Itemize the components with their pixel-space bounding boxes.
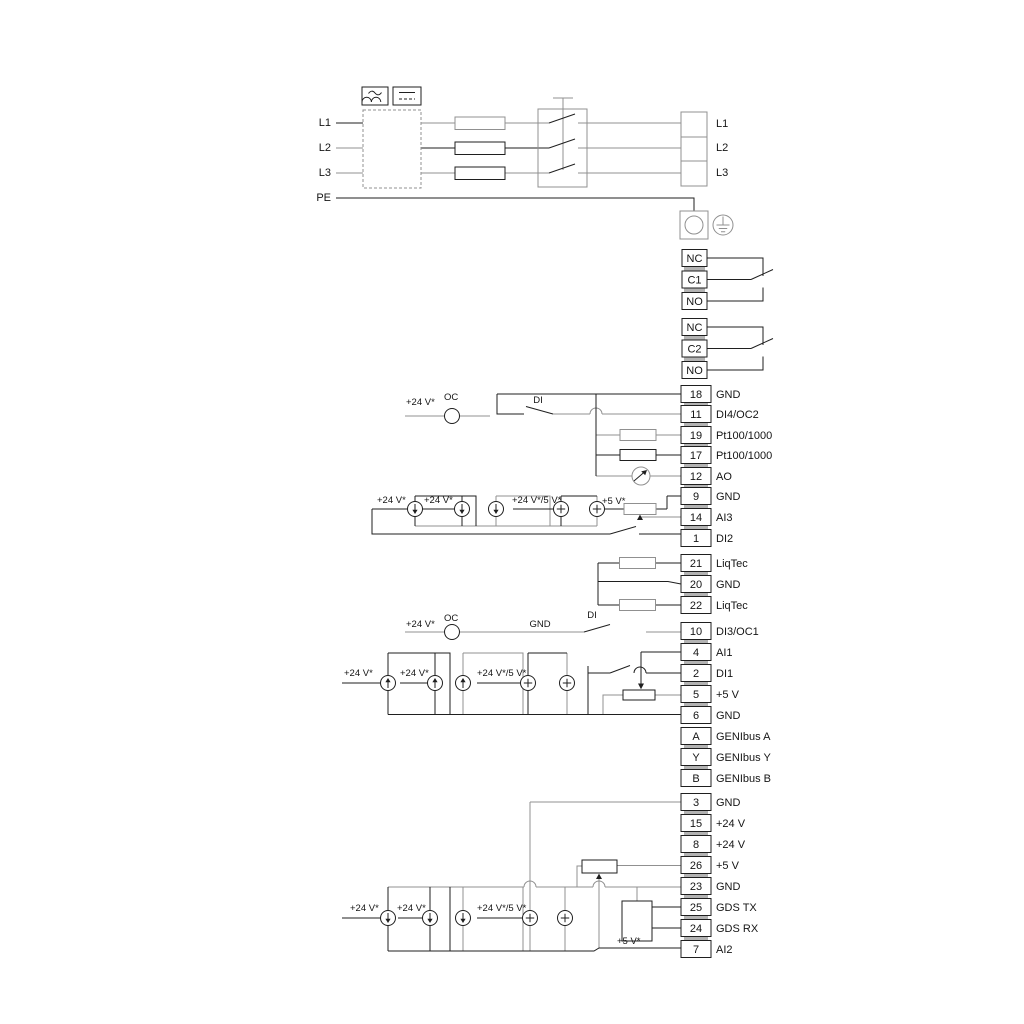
terminal-label: AO — [716, 471, 732, 483]
terminal-number: 6 — [693, 710, 699, 722]
terminal-number: 1 — [693, 533, 699, 545]
terminal-label: AI3 — [716, 512, 733, 524]
terminal-label: AI2 — [716, 944, 733, 956]
v24-label: +24 V* — [400, 668, 429, 679]
terminal-row: 3GND — [681, 794, 741, 811]
terminal-row: 14AI3 — [681, 509, 733, 526]
mains-pe-label: PE — [316, 192, 331, 204]
terminal-row: 18GND — [681, 386, 741, 403]
terminal-number: B — [692, 773, 699, 785]
relay1-c1-label: C1 — [687, 275, 701, 287]
terminal-strip: 18GND 11DI4/OC2 19Pt100/1000 17Pt100/100… — [681, 386, 772, 958]
fuse-l3 — [455, 167, 505, 180]
terminal-row: 12AO — [681, 468, 732, 485]
relay2-no-label: NO — [686, 365, 703, 377]
terminal-label: DI2 — [716, 533, 733, 545]
terminal-row: YGENIbus Y — [681, 749, 771, 766]
terminal-row: 1DI2 — [681, 530, 733, 547]
terminal-label: +24 V — [716, 818, 746, 830]
terminal-number: 22 — [690, 600, 702, 612]
wiring-diagram-page: NC C1 NO NC C2 NO — [0, 0, 1024, 1024]
terminal-number: 9 — [693, 491, 699, 503]
v24-label: +24 V* — [344, 668, 373, 679]
terminal-number: 19 — [690, 430, 702, 442]
v24-label: +24 V* — [397, 903, 426, 914]
terminal-number: 7 — [693, 944, 699, 956]
v24-label: +24 V* — [350, 903, 379, 914]
terminal-row: AGENIbus A — [681, 728, 771, 745]
terminal-row: 24GDS RX — [681, 920, 759, 937]
terminal-label: GENIbus B — [716, 773, 771, 785]
di-label: DI — [533, 395, 543, 406]
terminal-label: LiqTec — [716, 558, 748, 570]
gds-sensor-box — [622, 901, 652, 941]
terminal-label: Pt100/1000 — [716, 450, 772, 462]
terminal-number: 10 — [690, 626, 702, 638]
terminal-label: AI1 — [716, 647, 733, 659]
gnd-wire-label: GND — [529, 619, 550, 630]
wiper-arrow-ai1-icon — [638, 684, 644, 690]
terminal-number: 4 — [693, 647, 699, 659]
terminal-number: 21 — [690, 558, 702, 570]
terminal-row: 2DI1 — [681, 665, 733, 682]
analog-output-meter-icon — [632, 467, 650, 485]
relay1-no-label: NO — [686, 296, 703, 308]
terminal-label: GND — [716, 797, 741, 809]
wiper-arrow-ai2-icon — [596, 874, 602, 879]
v5-label: +5 V* — [602, 496, 626, 507]
resistor-liqtec-22 — [620, 600, 656, 611]
terminal-number: 24 — [690, 923, 702, 935]
terminal-label: LiqTec — [716, 600, 748, 612]
terminal-row: 7AI2 — [681, 941, 733, 958]
terminal-number: 11 — [690, 409, 701, 421]
terminal-label: GND — [716, 881, 741, 893]
terminal-row: 21LiqTec — [681, 555, 748, 572]
terminal-label: +5 V — [716, 860, 740, 872]
sensor-supply-circles — [381, 502, 605, 926]
filter-box — [363, 110, 421, 188]
terminal-number: 26 — [690, 860, 702, 872]
relay2-nc-label: NC — [687, 322, 703, 334]
terminal-number: 20 — [690, 579, 702, 591]
terminal-row: 9GND — [681, 488, 741, 505]
terminal-row: 15+24 V — [681, 815, 746, 832]
terminal-label: GENIbus A — [716, 731, 771, 743]
terminal-number: 23 — [690, 881, 702, 893]
v24-label: +24 V* — [406, 619, 435, 630]
terminal-label: GND — [716, 389, 741, 401]
potentiometer-ai3 — [624, 504, 656, 515]
terminal-label: GDS TX — [716, 902, 757, 914]
relay2-c2-label: C2 — [687, 344, 701, 356]
block-l2-label: L2 — [716, 142, 728, 154]
terminal-number: 12 — [690, 471, 702, 483]
terminal-number: 17 — [690, 450, 702, 462]
oc-label: OC — [444, 392, 458, 403]
terminal-label: Pt100/1000 — [716, 430, 772, 442]
terminal-row: BGENIbus B — [681, 770, 771, 787]
terminal-row: 25GDS TX — [681, 899, 757, 916]
terminal-label: GENIbus Y — [716, 752, 771, 764]
v24-v5-label: +24 V*/5 V* — [477, 903, 527, 914]
terminal-row: 6GND — [681, 707, 741, 724]
block-l1-label: L1 — [716, 118, 728, 130]
dc-symbol-box — [393, 87, 421, 105]
terminal-number: Y — [692, 752, 700, 764]
v24-v5-label: +24 V*/5 V* — [477, 668, 527, 679]
wiring-diagram: NC C1 NO NC C2 NO — [0, 0, 1024, 1024]
terminal-label: DI1 — [716, 668, 733, 680]
mains-l1-label: L1 — [319, 117, 331, 129]
v24-label: +24 V* — [377, 495, 406, 506]
terminal-row: 22LiqTec — [681, 597, 748, 614]
v5-label: +5 V* — [617, 936, 641, 947]
resistor-liqtec-21 — [620, 558, 656, 569]
terminal-number: 8 — [693, 839, 699, 851]
terminal-number: 2 — [693, 668, 699, 680]
relay-blocks: NC C1 NO NC C2 NO — [682, 250, 707, 379]
terminal-row: 5+5 V — [681, 686, 740, 703]
terminal-row: 26+5 V — [681, 857, 740, 874]
terminal-number: 5 — [693, 689, 699, 701]
terminal-number: 15 — [690, 818, 702, 830]
terminal-row: 8+24 V — [681, 836, 746, 853]
terminal-row: 19Pt100/1000 — [681, 427, 772, 444]
wiring-grey — [336, 98, 681, 951]
terminal-number: 14 — [690, 512, 702, 524]
pe-screw-icon — [685, 216, 703, 234]
terminal-label: +24 V — [716, 839, 746, 851]
terminal-label: GDS RX — [716, 923, 759, 935]
terminal-label: +5 V — [716, 689, 740, 701]
terminal-number: 18 — [690, 389, 702, 401]
resistor-pt100-19 — [620, 430, 656, 441]
terminal-row: 10DI3/OC1 — [681, 623, 759, 640]
di-label: DI — [587, 610, 597, 621]
v24-label: +24 V* — [424, 495, 453, 506]
terminal-row: 20GND — [681, 576, 741, 593]
oc-circle-top — [445, 409, 460, 424]
block-l3-label: L3 — [716, 167, 728, 179]
terminal-number: A — [692, 731, 700, 743]
terminal-label: GND — [716, 491, 741, 503]
potentiometer-ai2 — [582, 860, 617, 873]
fuse-l2 — [455, 142, 505, 155]
oc-label: OC — [444, 613, 458, 624]
fuse-l1 — [455, 117, 505, 130]
annotations: L1 L2 L3 PE L1 L2 L3 +24 V* OC DI +24 V*… — [316, 117, 728, 947]
terminal-number: 3 — [693, 797, 699, 809]
terminal-row: 17Pt100/1000 — [681, 447, 772, 464]
relay1-nc-label: NC — [687, 253, 703, 265]
mains-l3-label: L3 — [319, 167, 331, 179]
mains-terminal-block — [681, 112, 707, 186]
terminal-number: 25 — [690, 902, 702, 914]
oc-circle-bottom — [445, 625, 460, 640]
potentiometer-ai1 — [623, 690, 655, 700]
v24-label: +24 V* — [406, 397, 435, 408]
terminal-row: 23GND — [681, 878, 741, 895]
terminal-label: GND — [716, 710, 741, 722]
terminal-label: DI3/OC1 — [716, 626, 759, 638]
terminal-label: DI4/OC2 — [716, 409, 759, 421]
v24-v5-label: +24 V*/5 V* — [512, 495, 562, 506]
terminal-label: GND — [716, 579, 741, 591]
terminal-row: 4AI1 — [681, 644, 733, 661]
terminal-row: 11DI4/OC2 — [681, 406, 759, 423]
mains-l2-label: L2 — [319, 142, 331, 154]
resistor-pt100-17 — [620, 450, 656, 461]
mains-input-section — [362, 87, 733, 239]
ac-symbol-box — [362, 87, 388, 105]
